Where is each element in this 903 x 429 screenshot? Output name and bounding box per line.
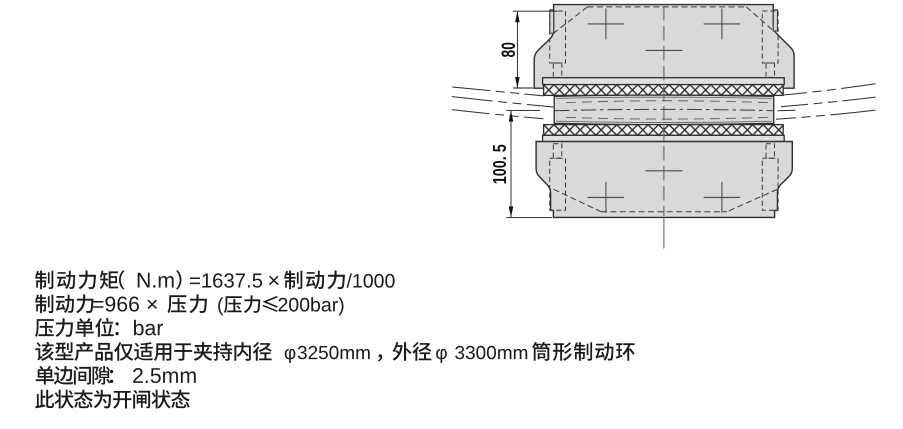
svg-text:80: 80: [498, 42, 520, 58]
svg-text:100. 5: 100. 5: [489, 144, 510, 184]
